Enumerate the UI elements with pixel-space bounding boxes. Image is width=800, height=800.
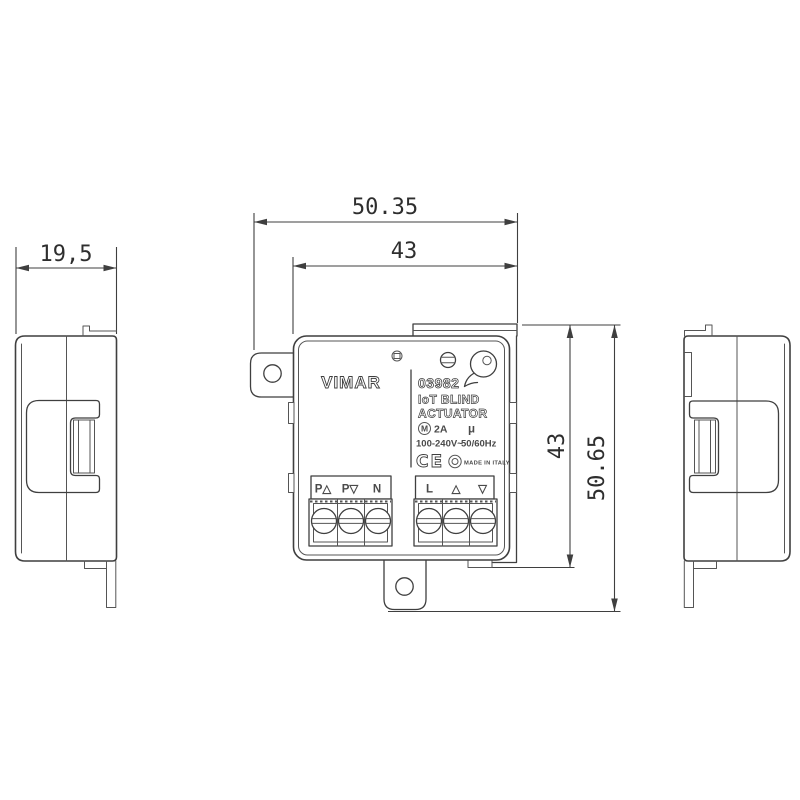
mounting-hole <box>396 578 413 595</box>
latch-bump <box>510 474 517 493</box>
dimension-drawing: 19,5 50.35 43 <box>0 0 800 800</box>
made-in-text: MADE IN ITALY <box>464 461 510 467</box>
arrowhead-icon <box>505 219 518 226</box>
product-name-line1: IoT BLIND <box>418 393 480 407</box>
arrowhead-icon <box>505 263 518 270</box>
dimension-side-depth: 19,5 <box>16 242 117 334</box>
screw-head-icon <box>312 509 337 534</box>
left-side-view: 19,5 <box>16 242 117 608</box>
terminal-screw <box>444 509 469 534</box>
screw-head-icon <box>366 509 391 534</box>
arrowhead-icon <box>254 219 267 226</box>
screw-head-icon <box>339 509 364 534</box>
screw-head-icon <box>417 509 442 534</box>
product-name-line2: ACTUATOR <box>418 407 487 421</box>
terminal-screw <box>339 509 364 534</box>
current-rating: 2A <box>434 424 448 436</box>
front-view: 50.35 43 43 50.65 <box>251 195 621 612</box>
terminal-block-right <box>414 499 497 546</box>
terminal-label: ▽ <box>477 484 488 496</box>
terminal-screw <box>471 509 496 534</box>
dimension-value-cover-width: 43 <box>391 239 418 264</box>
arrowhead-icon <box>611 325 618 338</box>
dimension-overall-height: 50.65 <box>585 325 618 612</box>
dimension-value-cover-height: 43 <box>545 433 570 460</box>
voltage-rating: 100-240V~ <box>416 439 463 450</box>
bottom-tab-edge <box>107 561 116 608</box>
bottom-cable-step <box>468 560 492 568</box>
ce-mark-icon: CE <box>416 452 444 472</box>
terminal-block-left <box>309 499 392 546</box>
arrowhead-icon <box>567 325 574 338</box>
terminal-label: N <box>373 484 381 496</box>
model-number: 03982 <box>418 375 459 391</box>
terminal-screw <box>366 509 391 534</box>
latch-bump <box>510 403 517 424</box>
bottom-rear-step <box>85 561 107 569</box>
screw-head-icon <box>471 509 496 534</box>
screw-head-icon <box>444 509 469 534</box>
terminal-screw <box>312 509 337 534</box>
bottom-tab-edge <box>684 561 693 608</box>
arrowhead-icon <box>293 263 306 270</box>
arrowhead-icon <box>611 599 618 612</box>
bottom-rear-step <box>694 561 717 569</box>
terminal-screw <box>417 509 442 534</box>
terminal-label: △ <box>451 484 462 496</box>
motor-symbol: M <box>421 424 428 434</box>
dimension-value-side-depth: 19,5 <box>40 242 93 267</box>
dimension-cover-width: 43 <box>293 239 518 334</box>
right-side-view <box>684 325 790 608</box>
terminal-label: L <box>426 484 433 496</box>
micro-gap-symbol: μ <box>468 424 475 436</box>
terminal-labels-right: L △ ▽ <box>416 476 495 499</box>
mounting-hole <box>264 365 281 382</box>
top-rear-step <box>685 325 713 336</box>
technical-drawing-page: 19,5 50.35 43 <box>0 0 800 800</box>
terminal-label: P▽ <box>342 484 360 496</box>
terminal-labels-left: P△ P▽ N <box>311 476 391 499</box>
latch-bump <box>289 474 295 493</box>
arrowhead-icon <box>567 555 574 568</box>
dimension-value-overall-width: 50.35 <box>352 195 418 220</box>
terminal-label: P△ <box>315 484 333 496</box>
brand-logo-text: VIMAR <box>321 373 381 392</box>
dimension-value-overall-height: 50.65 <box>585 435 610 501</box>
latch-bump <box>289 403 295 424</box>
arrowhead-icon <box>16 265 29 272</box>
arrowhead-icon <box>104 265 117 272</box>
frequency-rating: 50/60Hz <box>461 439 497 450</box>
top-rear-step <box>83 326 117 336</box>
